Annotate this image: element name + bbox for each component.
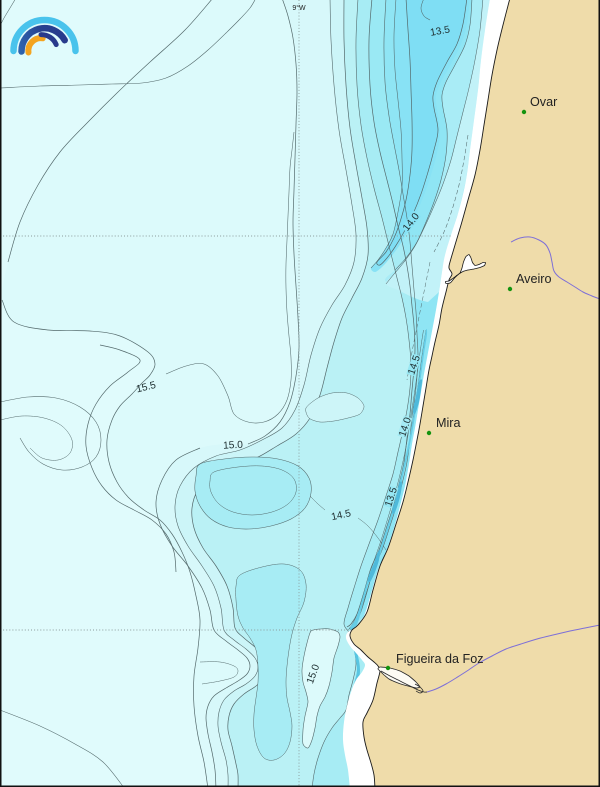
svg-text:Mira: Mira	[436, 416, 461, 430]
svg-text:9°W: 9°W	[292, 4, 306, 12]
svg-text:Ovar: Ovar	[530, 95, 557, 109]
svg-text:15.0: 15.0	[223, 440, 244, 452]
svg-text:Figueira da Foz: Figueira da Foz	[396, 652, 484, 666]
svg-text:Aveiro: Aveiro	[516, 272, 551, 286]
